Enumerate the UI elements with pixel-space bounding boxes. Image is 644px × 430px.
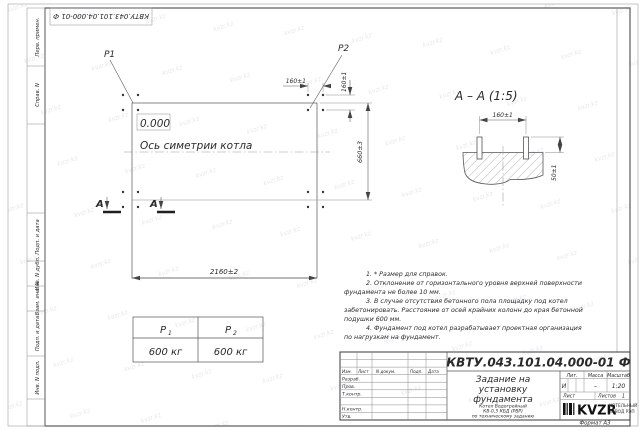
row-label-prov: Пров. — [342, 384, 355, 390]
logo-sub2: ЗАВОД РЭП — [609, 409, 635, 415]
frame-label-podp-data-2: Подп. и дата — [35, 316, 41, 351]
frame-label-vzam-inv: Взам. инв. N — [35, 282, 41, 316]
table-header-p2-sub: 2 — [233, 330, 237, 337]
table-header-p1-sub: 1 — [168, 330, 172, 337]
table-value-p2: 600 кг — [214, 347, 248, 358]
table-value-p1: 600 кг — [149, 347, 183, 358]
row-label-tkontr: Т.контр. — [342, 392, 362, 398]
doc-title-line3: фундамента — [473, 395, 533, 405]
frame-label-inv-podl: Инв. N подл. — [35, 360, 41, 394]
section-title: А – А (1:5) — [454, 89, 518, 103]
load-point-p1-label: P1 — [104, 50, 115, 60]
frame-label-perv-primen: Перв. примен. — [35, 18, 41, 57]
doc-subtitle-line3: по техническому заданию — [472, 415, 535, 420]
col-header-list: Лист — [357, 369, 369, 374]
anchor-bolt-right — [524, 137, 529, 159]
top-stamp-doc-number: КВТУ.043.101.04.000-01 Ф — [53, 12, 149, 20]
mass-header: Масса — [588, 373, 603, 379]
col-header-data: Дата — [427, 369, 439, 374]
col-header-doc: N докум. — [376, 369, 395, 374]
note-line: 2. Отклонение от горизонтального уровня … — [366, 280, 582, 287]
lit-value: И — [562, 383, 567, 390]
sheets-value: 1 — [622, 394, 625, 400]
table-header-p2: P — [225, 325, 232, 336]
drawing-page: kvzr.kz kvzr.kz Перв. примен. Справ. N П… — [0, 0, 644, 430]
note-line: подушки 600 мм. — [344, 316, 401, 323]
note-line: забетонировать. Расстояние от осей крайн… — [344, 306, 583, 314]
doc-title-line2: установку — [478, 385, 528, 395]
sheets-label: Листов — [597, 394, 616, 400]
dim-660-text: 660±3 — [356, 141, 364, 163]
note-line: 1. * Размер для справок. — [366, 271, 448, 278]
lit-header: Лит. — [565, 373, 577, 379]
note-line: фундамента не более 10 мм. — [344, 288, 441, 296]
col-header-podp: Подп. — [410, 369, 423, 374]
note-line: по нагрузкам на фундамент. — [344, 334, 441, 341]
col-header-izm: Изм. — [342, 369, 352, 374]
row-label-nkontr: Н.контр. — [342, 407, 363, 413]
doc-number: КВТУ.043.101.04.000-01 Ф — [446, 356, 630, 370]
dim-bolt-x-text: 160±1 — [286, 78, 306, 85]
doc-title-line1: Задание на — [476, 375, 531, 385]
dim-section-50-text: 50±1 — [551, 165, 558, 181]
mass-value: – — [594, 383, 597, 390]
note-line: 3. В случае отсутствия бетонного пола пл… — [366, 297, 568, 305]
dim-bolt-y-text: 160±1 — [341, 72, 348, 92]
elevation-value: 0.000 — [140, 118, 170, 130]
dim-section-160-text: 160±1 — [493, 112, 513, 119]
sheet-label: Лист — [562, 394, 575, 400]
boiler-symmetry-axis-label: Ось симетрии котла — [140, 140, 252, 152]
table-header-p1: P — [160, 325, 167, 336]
note-line: 4. Фундамент под котел разрабатывает про… — [366, 324, 582, 332]
frame-label-sprav-n: Справ. N — [35, 83, 41, 107]
section-letter-right: А — [149, 199, 158, 210]
scale-value: 1:20 — [612, 383, 626, 390]
logo-sub1: КОТЕЛЬНЫЙ — [609, 402, 637, 409]
anchor-bolt-left — [477, 137, 482, 159]
row-label-utv: Утв. — [342, 414, 352, 420]
load-point-p2-label: P2 — [338, 44, 349, 54]
dim-2160-text: 2160±2 — [210, 268, 239, 276]
scale-header: Масштаб — [607, 373, 630, 379]
engineering-drawing: kvzr.kz kvzr.kz Перв. примен. Справ. N П… — [0, 0, 644, 430]
frame-label-podp-data-1: Подп. и дата — [35, 219, 41, 254]
section-letter-left: А — [95, 199, 104, 210]
row-label-razrab: Разраб. — [342, 377, 360, 383]
format-label: Формат А3 — [579, 421, 611, 427]
